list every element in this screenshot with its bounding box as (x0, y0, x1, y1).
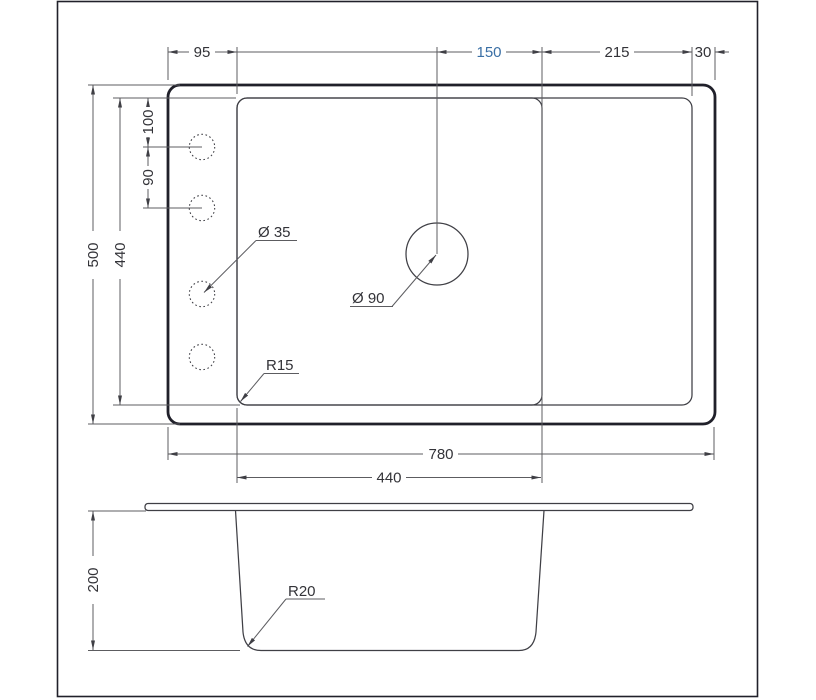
extension-lines (88, 47, 715, 651)
dim-200-label: 200 (85, 567, 102, 592)
leader-lines (204, 241, 436, 647)
leader-dia90 (392, 255, 436, 307)
bottom-radius-label: R20 (288, 583, 316, 600)
dim-440-left-label: 440 (112, 242, 129, 267)
sink-technical-drawing: 95 150 215 30 500 440 100 90 780 440 200… (0, 0, 816, 700)
inner-radius-label: R15 (266, 357, 294, 374)
drawing-frame (58, 2, 758, 697)
dim-440-bottom-label: 440 (376, 470, 401, 487)
leader-dia35 (204, 241, 256, 293)
top-view (168, 85, 715, 424)
dim-30-label: 30 (695, 44, 712, 61)
rim-section-outline (145, 504, 693, 511)
dim-100-label: 100 (140, 109, 157, 134)
dim-500-label: 500 (85, 242, 102, 267)
leader-r15 (241, 374, 265, 402)
outer-rim-outline (168, 85, 715, 424)
dim-150-label: 150 (476, 44, 501, 61)
faucet-holes (189, 134, 214, 369)
dim-215-label: 215 (604, 44, 629, 61)
side-view (145, 504, 693, 651)
dimension-lines (93, 52, 729, 650)
dim-780-label: 780 (428, 446, 453, 463)
bowl-section-outline (236, 511, 545, 651)
drain-diameter-label: Ø 90 (352, 290, 385, 307)
hole-diameter-label: Ø 35 (258, 224, 291, 241)
inner-basin-outline (237, 98, 692, 405)
drawing-svg: 95 150 215 30 500 440 100 90 780 440 200… (0, 0, 816, 700)
dimension-labels: 95 150 215 30 500 440 100 90 780 440 200… (85, 44, 711, 600)
faucet-hole-4 (189, 344, 214, 369)
dim-95-label: 95 (194, 44, 211, 61)
leader-r20 (248, 599, 287, 647)
dim-90-label: 90 (140, 169, 157, 186)
